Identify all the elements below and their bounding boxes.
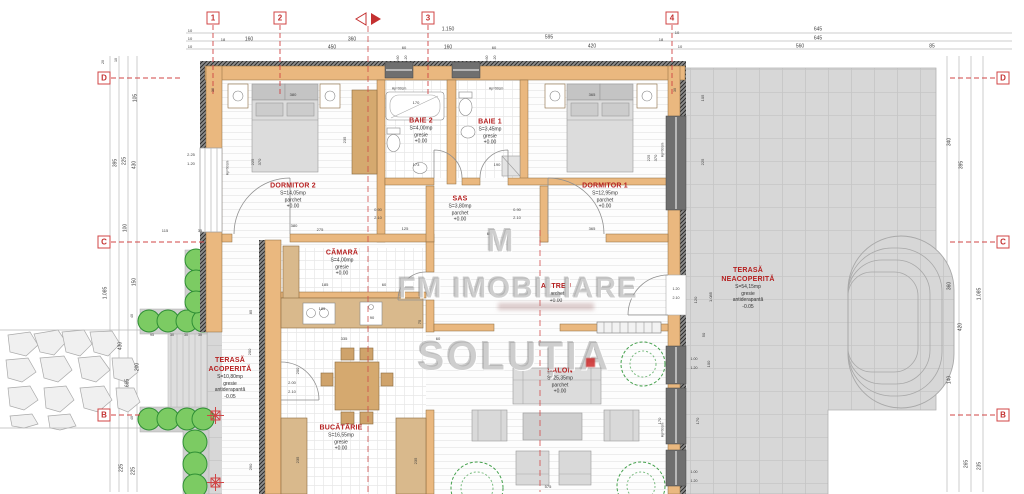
- dimension-label: 225: [647, 155, 651, 162]
- dimension-label: 120: [694, 297, 698, 304]
- dimension-label: 225: [701, 159, 705, 166]
- dimension-label: Hp=90cm: [661, 143, 664, 158]
- grid-marker-3: 3: [422, 12, 435, 25]
- dimension-label: 335: [341, 337, 348, 341]
- dimension-label: 2.25: [187, 153, 195, 157]
- dimension-label: 380: [291, 224, 298, 228]
- dimension-label: 1.20: [494, 56, 498, 63]
- dimension-label: 0.60: [486, 56, 490, 63]
- dimension-label: 95: [150, 334, 154, 338]
- dimension-label: 35: [198, 229, 202, 233]
- dimension-label: 1.20: [187, 162, 195, 166]
- dimension-label: 1.00: [691, 358, 698, 362]
- dimension-label: 1.150: [442, 28, 455, 33]
- dimension-label: Hp=90cm: [226, 161, 229, 176]
- dimension-label: 420: [588, 45, 596, 50]
- room-label-antreu: ANTREUparchet+0.00: [541, 282, 571, 304]
- dimension-label: 200: [296, 368, 300, 375]
- dimension-label: 18: [221, 38, 225, 42]
- dimension-label: 10: [678, 45, 682, 49]
- dimension-label: 275: [317, 228, 324, 232]
- dimension-label: 30: [184, 334, 188, 338]
- dimension-label: 75: [418, 320, 422, 324]
- dimension-label: 105: [134, 94, 139, 102]
- dimension-label: 10: [675, 31, 679, 35]
- dimension-label: 665: [126, 379, 131, 387]
- dimension-label: 100: [707, 361, 711, 368]
- grid-marker-C: C: [98, 236, 111, 249]
- dimension-label: 235: [978, 462, 983, 470]
- grid-marker-4: 4: [666, 12, 679, 25]
- dimension-label: 115: [162, 229, 168, 233]
- grid-marker-2: 2: [274, 12, 287, 25]
- dimension-label: 30: [674, 88, 678, 92]
- room-label-sas: SASS=3,80mpparchet+0.00: [449, 195, 472, 224]
- room-label-camara: CĂMARĂS=4,00mpgresie+0.00: [326, 249, 358, 278]
- dimension-label: 60: [492, 46, 496, 50]
- dimension-label: 0.60: [397, 56, 401, 63]
- dimension-label: 430: [119, 342, 124, 350]
- dimension-label: 290: [249, 464, 253, 471]
- dimension-label: 235: [343, 137, 347, 144]
- room-label-terasa-acoperita: TERASĂ ACOPERITĂS=10,80mpgresieantiderap…: [197, 356, 263, 400]
- dimension-label: 2.10: [374, 216, 382, 220]
- dimension-label: 560: [796, 45, 804, 50]
- dimension-label: 1.20: [691, 367, 698, 371]
- dimension-label: 265: [965, 460, 970, 468]
- dimension-label: 200: [248, 349, 252, 356]
- grid-marker-D: D: [997, 72, 1010, 85]
- floor-plan-canvas: 1.15064510101018160360595645450601606042…: [0, 0, 1024, 494]
- dimension-label: Hp=90cm: [661, 423, 664, 438]
- dimension-label: 0.90: [513, 208, 521, 212]
- room-label-baie-1: BAIE 1S=3,45mpgresie+0.00: [478, 118, 502, 147]
- dimension-label: 360: [948, 282, 953, 290]
- dimension-label: 0.90: [374, 208, 382, 212]
- dimension-label: 235: [414, 458, 418, 465]
- dimension-label: 225: [120, 464, 125, 472]
- dimension-label: 370: [258, 159, 262, 166]
- dimension-label: 65: [487, 232, 491, 236]
- dimension-label: 190: [494, 163, 501, 167]
- dimension-label: 340: [948, 138, 953, 146]
- dimension-label: 225: [123, 157, 128, 165]
- dimension-label: 575: [545, 485, 552, 489]
- dimension-label: 200: [136, 363, 141, 371]
- dimension-label: 50: [702, 333, 706, 337]
- dimension-label: 225: [132, 467, 137, 475]
- dimension-label: 185: [322, 283, 329, 287]
- dimension-label: 225: [251, 159, 255, 166]
- dimension-label: 595: [545, 36, 553, 41]
- dimension-label: 1.20: [673, 288, 680, 292]
- dimension-label: 30: [212, 88, 216, 92]
- dimension-label: 2.00: [288, 381, 296, 385]
- dimension-label: 85: [929, 45, 935, 50]
- dimension-label: 60: [382, 283, 386, 287]
- dimension-label: 160: [444, 46, 452, 51]
- dimension-label: 2.10: [288, 390, 296, 394]
- dimension-label: 85: [249, 310, 253, 314]
- room-label-dormitor-2: DORMITOR 2S=14,05mpparchet+0.00: [270, 182, 316, 211]
- dimension-label: 395: [114, 159, 119, 167]
- dimension-label: 170: [696, 418, 700, 425]
- dimension-label: 100: [124, 224, 129, 232]
- dimension-label: 20: [102, 60, 106, 64]
- dimension-label: 395: [960, 161, 965, 169]
- dimension-label: 30: [170, 334, 174, 338]
- dimension-label: Hp=90cm: [392, 87, 407, 90]
- dimension-label: 235: [296, 457, 300, 464]
- room-label-dormitor-1: DORMITOR 1S=12,95mpparchet+0.00: [582, 182, 628, 211]
- dimension-label: 10: [188, 29, 192, 33]
- room-label-baie-2: BAIE 2S=4,00mpgresie+0.00: [409, 117, 433, 146]
- dimension-label: 10: [188, 45, 192, 49]
- room-label-salon: SALONS=25,35mpparchet+0.00: [547, 367, 573, 396]
- dimension-label: 10: [188, 37, 192, 41]
- grid-marker-B: B: [98, 409, 111, 422]
- dimension-label: 1.085: [978, 288, 983, 301]
- dimension-label: 365: [589, 227, 596, 231]
- dimension-label: 420: [959, 323, 964, 331]
- dimension-label: 1.20: [405, 56, 409, 63]
- dimension-label: 380: [290, 93, 297, 97]
- grid-marker-D: D: [98, 72, 111, 85]
- dimension-label: 1.085: [104, 287, 109, 300]
- dimension-label: 40: [131, 314, 135, 318]
- dimension-label: 125: [402, 227, 409, 231]
- dimension-label: 60: [402, 46, 406, 50]
- dimension-label: 150: [133, 278, 138, 286]
- room-label-terasa-neacoperita: TERASĂ NEACOPERITĂS=54,15mpgresieantider…: [711, 266, 785, 310]
- dimension-label: 370: [654, 155, 658, 162]
- labels-layer: 1.15064510101018160360595645450601606042…: [0, 0, 1024, 494]
- dimension-label: 160: [245, 38, 253, 43]
- dimension-label: 90: [370, 316, 374, 320]
- dimension-label: 40: [131, 416, 135, 420]
- dimension-label: 30: [198, 334, 202, 338]
- dimension-label: 173: [413, 163, 420, 167]
- grid-marker-1: 1: [207, 12, 220, 25]
- dimension-label: 450: [328, 46, 336, 51]
- grid-marker-C: C: [997, 236, 1010, 249]
- dimension-label: 105: [701, 95, 705, 102]
- dimension-label: Hp=90cm: [489, 87, 504, 90]
- dimension-label: 1.00: [691, 471, 698, 475]
- dimension-label: 170: [413, 101, 420, 105]
- dimension-label: 645: [814, 28, 822, 33]
- dimension-label: 2.10: [673, 297, 680, 301]
- dimension-label: 1.20: [691, 480, 698, 484]
- dimension-label: 360: [348, 38, 356, 43]
- dimension-label: 10: [115, 58, 119, 62]
- dimension-label: 430: [133, 161, 138, 169]
- dimension-label: 18: [659, 38, 663, 42]
- grid-marker-B: B: [997, 409, 1010, 422]
- dimension-label: 2.10: [513, 216, 521, 220]
- dimension-label: 365: [589, 93, 596, 97]
- dimension-label: 645: [814, 37, 822, 42]
- dimension-label: 140: [948, 376, 953, 384]
- dimension-label: 185: [319, 307, 326, 311]
- room-label-bucatarie: BUCĂTĂRIES=16,55mpgresie+0.00: [319, 424, 362, 453]
- dimension-label: 60: [436, 337, 440, 341]
